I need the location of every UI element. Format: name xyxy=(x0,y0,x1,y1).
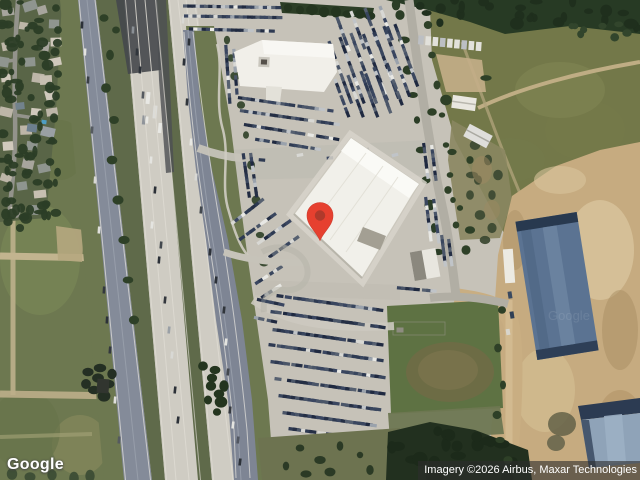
svg-text:Google: Google xyxy=(548,308,590,323)
